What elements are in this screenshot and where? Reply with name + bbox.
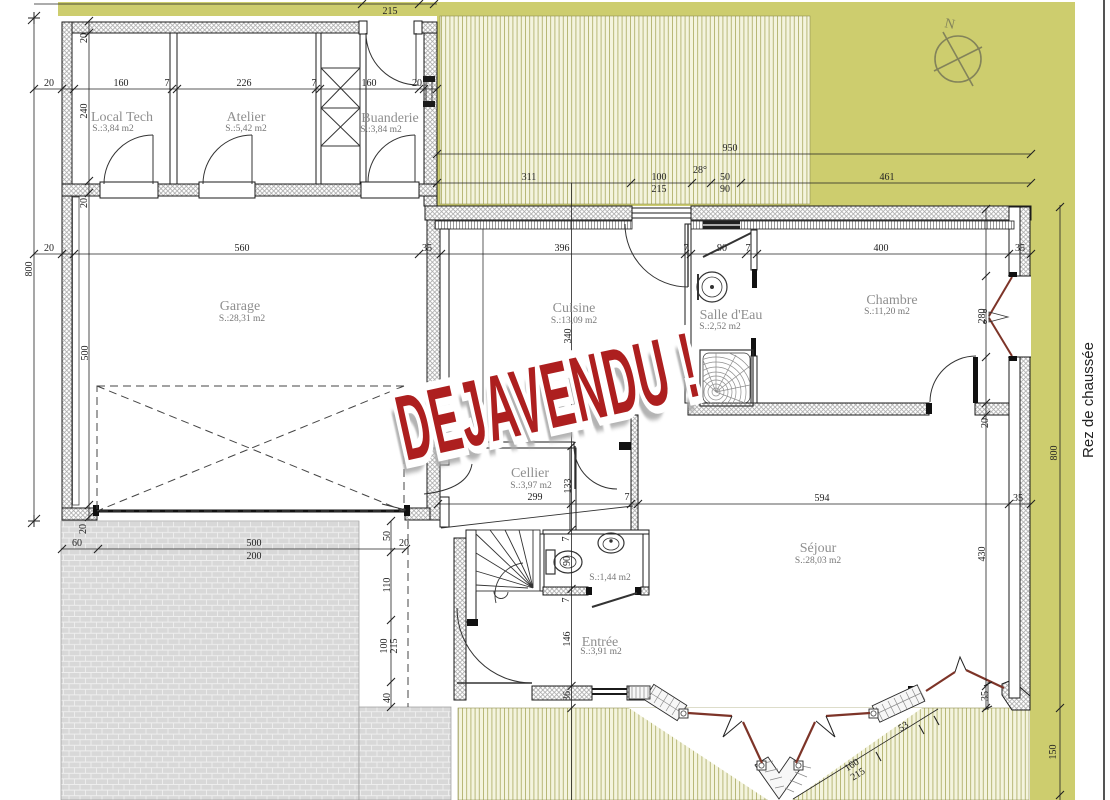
svg-text:226: 226: [237, 78, 252, 89]
svg-text:36: 36: [562, 691, 573, 701]
svg-text:110: 110: [382, 578, 393, 593]
svg-text:160: 160: [114, 78, 129, 89]
svg-text:Local Tech: Local Tech: [91, 110, 153, 125]
svg-text:20: 20: [980, 418, 991, 428]
svg-text:Salle d'Eau: Salle d'Eau: [700, 308, 763, 323]
svg-text:200: 200: [247, 551, 262, 562]
svg-text:20: 20: [78, 524, 89, 534]
svg-text:90: 90: [562, 556, 573, 566]
svg-text:Chambre: Chambre: [866, 293, 917, 308]
svg-text:S.:28,03 m2: S.:28,03 m2: [795, 556, 841, 566]
svg-text:35: 35: [1015, 243, 1025, 254]
svg-text:20: 20: [79, 198, 90, 208]
svg-text:S.:3,84 m2: S.:3,84 m2: [92, 124, 134, 134]
svg-text:7: 7: [165, 78, 170, 89]
svg-text:Cuisine: Cuisine: [553, 301, 596, 316]
svg-text:430: 430: [977, 547, 988, 562]
svg-text:S.:11,20 m2: S.:11,20 m2: [864, 307, 910, 317]
svg-text:35: 35: [1013, 493, 1023, 504]
svg-text:20: 20: [44, 78, 54, 89]
svg-text:396: 396: [555, 243, 570, 254]
svg-text:Buanderie: Buanderie: [361, 111, 419, 126]
svg-text:60: 60: [72, 538, 82, 549]
svg-text:20: 20: [412, 78, 422, 89]
svg-text:311: 311: [522, 172, 537, 183]
svg-text:461: 461: [880, 172, 895, 183]
svg-text:50: 50: [382, 531, 393, 541]
svg-text:Séjour: Séjour: [800, 541, 837, 556]
svg-text:20: 20: [399, 538, 409, 549]
svg-text:215: 215: [389, 639, 400, 654]
svg-text:S.:3,84 m2: S.:3,84 m2: [360, 125, 402, 135]
svg-text:20: 20: [44, 243, 54, 254]
svg-text:28°: 28°: [693, 165, 707, 176]
svg-text:150: 150: [1048, 745, 1059, 760]
svg-text:S.:3,91 m2: S.:3,91 m2: [580, 647, 622, 657]
svg-text:Rez de chaussée: Rez de chaussée: [1080, 342, 1097, 458]
svg-text:560: 560: [235, 243, 250, 254]
svg-text:S.:2,52 m2: S.:2,52 m2: [699, 322, 741, 332]
svg-text:7: 7: [561, 598, 572, 603]
svg-text:7: 7: [561, 537, 572, 542]
svg-text:215: 215: [383, 6, 398, 17]
svg-text:7: 7: [312, 78, 317, 89]
svg-text:800: 800: [1049, 446, 1060, 461]
svg-text:7: 7: [625, 492, 630, 503]
svg-text:S.:28,31 m2: S.:28,31 m2: [219, 314, 265, 324]
svg-text:35: 35: [422, 243, 432, 254]
svg-text:160: 160: [362, 78, 377, 89]
svg-text:90: 90: [720, 184, 730, 195]
svg-text:133: 133: [563, 479, 574, 494]
svg-text:S.:3,97 m2: S.:3,97 m2: [510, 481, 552, 491]
svg-text:7: 7: [684, 243, 689, 254]
svg-text:7: 7: [746, 243, 751, 254]
svg-text:400: 400: [874, 243, 889, 254]
svg-text:S.:1,44 m2: S.:1,44 m2: [589, 573, 631, 583]
svg-text:Garage: Garage: [220, 299, 260, 314]
svg-text:S.:5,42 m2: S.:5,42 m2: [225, 124, 267, 134]
svg-text:800: 800: [24, 262, 35, 277]
svg-text:20: 20: [79, 33, 90, 43]
svg-text:950: 950: [723, 143, 738, 154]
svg-text:35: 35: [980, 691, 991, 701]
svg-text:500: 500: [80, 346, 91, 361]
svg-text:280: 280: [977, 309, 988, 324]
svg-text:240: 240: [79, 104, 90, 119]
svg-text:S.:13,09 m2: S.:13,09 m2: [551, 316, 597, 326]
svg-text:146: 146: [562, 632, 573, 647]
svg-text:299: 299: [528, 492, 543, 503]
svg-text:50: 50: [720, 172, 730, 183]
svg-text:100: 100: [652, 172, 667, 183]
svg-text:215: 215: [652, 184, 667, 195]
svg-text:Atelier: Atelier: [227, 110, 266, 125]
svg-text:594: 594: [815, 493, 830, 504]
svg-text:90: 90: [717, 243, 727, 254]
svg-text:40: 40: [382, 693, 393, 703]
svg-text:500: 500: [247, 538, 262, 549]
